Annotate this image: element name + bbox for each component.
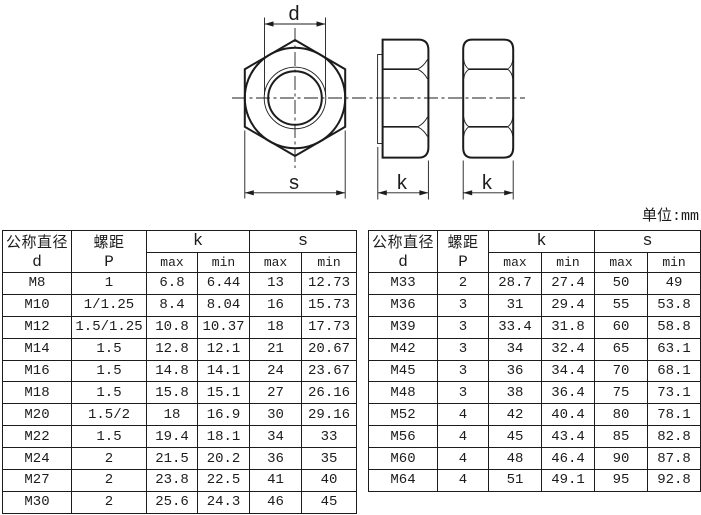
unit-note: 单位:mm [368,209,699,225]
table-cell: 15.8 [147,382,198,404]
table-row: M33228.727.45049 [369,273,701,295]
table-cell: M45 [369,360,438,382]
header-k-max: max [147,252,198,273]
table-cell: 68.1 [648,360,701,382]
table-cell: 32.4 [542,338,595,360]
table-row: M30225.624.34645 [3,491,357,513]
table-cell: 10.8 [147,316,198,338]
table-cell: 34 [489,338,542,360]
table-cell: M36 [369,294,438,316]
table-cell: M39 [369,316,438,338]
table-cell: 21 [250,338,302,360]
side-view-washer-faced [378,40,429,158]
table-row: M4233432.46563.1 [369,338,701,360]
dimension-k-right: k [463,161,513,200]
table-cell: 45 [489,426,542,448]
table-cell: 65 [595,338,648,360]
table-cell: 18.1 [198,426,250,448]
k-left-arrow-b [419,190,428,195]
side-body-outline [383,40,429,158]
pitch-label: 螺距 [72,231,146,252]
table-row: M5644543.48582.8 [369,426,701,448]
table-cell: 63.1 [648,338,701,360]
table-cell: 49 [648,273,701,295]
table-cell: 45 [302,491,357,513]
table-cell: 82.8 [648,426,701,448]
table-cell: 36.4 [542,382,595,404]
table-cell: 20.2 [198,448,250,470]
table-row: M221.519.418.13433 [3,426,357,448]
table-cell: 36 [250,448,302,470]
table-row: M201.5/21816.93029.16 [3,404,357,426]
table-cell: 30 [250,404,302,426]
table-cell: 12.73 [302,273,357,295]
table-cell: M64 [369,470,438,492]
table-cell: M10 [3,294,72,316]
table-cell: 6.44 [198,273,250,295]
dim-label-s: s [288,173,300,196]
table-row: M816.86.441312.73 [3,273,357,295]
table-cell: 60 [595,316,648,338]
table-cell: 14.8 [147,360,198,382]
table-cell: 8.4 [147,294,198,316]
table-cell: 1.5 [72,338,147,360]
table-cell: 10.37 [198,316,250,338]
chamfer-arcs-lower [418,117,428,136]
table-cell: 73.1 [648,382,701,404]
table-cell: 36 [489,360,542,382]
table-cell: M56 [369,426,438,448]
header-s-min: min [648,252,701,273]
page: d s [0,0,701,515]
table-cell: 1.5 [72,426,147,448]
table-cell: 40.4 [542,404,595,426]
table-cell: 42 [489,404,542,426]
table-cell: 1 [72,273,147,295]
table-cell: 25.6 [147,491,198,513]
header-pitch: 螺距 P [72,231,147,273]
table-cell: 34 [250,426,302,448]
table-cell: M48 [369,382,438,404]
table-cell: 29.16 [302,404,357,426]
table-cell: 15.1 [198,382,250,404]
header-s-max: max [250,252,302,273]
table-cell: 34.4 [542,360,595,382]
table-row: M6445149.19592.8 [369,470,701,492]
header-k-min: min [542,252,595,273]
table-cell: 18 [250,316,302,338]
s-arrow-left [245,190,254,195]
table-cell: M14 [3,338,72,360]
table-cell: 87.8 [648,448,701,470]
table-cell: 24.3 [198,491,250,513]
table-cell: 28.7 [489,273,542,295]
table-row: M141.512.812.12120.67 [3,338,357,360]
nut-technical-drawing: d s [0,0,701,228]
table-cell: 33.4 [489,316,542,338]
table-cell: 2 [438,273,489,295]
table-cell: 4 [438,426,489,448]
header-s: s [595,231,701,253]
header-nominal-diameter: 公称直径 d [3,231,72,273]
table-row: M4533634.47068.1 [369,360,701,382]
table-cell: 85 [595,426,648,448]
dimension-k-left: k [378,147,429,200]
table-cell: M12 [3,316,72,338]
header-k-max: max [489,252,542,273]
table-cell: 80 [595,404,648,426]
table-row: M101/1.258.48.041615.73 [3,294,357,316]
side-body-outline-2 [463,40,513,158]
nominal-diameter-label: 公称直径 [369,231,437,252]
table-cell: 2 [72,448,147,470]
table-cell: 19.4 [147,426,198,448]
table-cell: 4 [438,448,489,470]
pitch-symbol: P [72,252,146,272]
table-cell: 1.5/2 [72,404,147,426]
table-cell: 16.9 [198,404,250,426]
table-cell: M16 [3,360,72,382]
table-cell: 17.73 [302,316,357,338]
dim-label-d: d [288,4,300,27]
table-row: M24221.520.23635 [3,448,357,470]
table-cell: 4 [438,470,489,492]
table-cell: 3 [438,360,489,382]
table-cell: 1.5/1.25 [72,316,147,338]
table-cell: 16 [250,294,302,316]
table-cell: 31.8 [542,316,595,338]
header-k-min: min [198,252,250,273]
table-cell: 1/1.25 [72,294,147,316]
table-cell: 58.8 [648,316,701,338]
table-cell: 21.5 [147,448,198,470]
table-cell: M42 [369,338,438,360]
dimension-s: s [245,131,345,199]
table-cell: 22.5 [198,470,250,492]
table-cell: 2 [72,470,147,492]
table-cell: 53.8 [648,294,701,316]
table-cell: M24 [3,448,72,470]
table-cell: 51 [489,470,542,492]
table-cell: M30 [3,491,72,513]
header-nominal-diameter: 公称直径 d [369,231,438,273]
table-row: M39333.431.86058.8 [369,316,701,338]
table-cell: M8 [3,273,72,295]
table-cell: 23.67 [302,360,357,382]
header-s: s [250,231,357,253]
table-cell: 33 [302,426,357,448]
s-arrow-right [336,190,345,195]
table-cell: 95 [595,470,648,492]
table-cell: 43.4 [542,426,595,448]
header-k: k [147,231,250,253]
table-cell: 1.5 [72,382,147,404]
table-row: M121.5/1.2510.810.371817.73 [3,316,357,338]
table-cell: 90 [595,448,648,470]
table-cell: 14.1 [198,360,250,382]
table-cell: 20.67 [302,338,357,360]
table-cell: 48 [489,448,542,470]
table-cell: M60 [369,448,438,470]
table-cell: M52 [369,404,438,426]
pitch-symbol: P [438,252,488,272]
table-cell: M22 [3,426,72,448]
table-cell: M33 [369,273,438,295]
table-cell: 50 [595,273,648,295]
dim-label-k-right: k [481,173,493,196]
table-cell: 3 [438,382,489,404]
table-cell: 3 [438,294,489,316]
d-arrow-left [265,21,274,26]
table-row: M4833836.47573.1 [369,382,701,404]
table-cell: 38 [489,382,542,404]
table-cell: M20 [3,404,72,426]
dim-label-k-left: k [396,173,408,196]
nominal-diameter-symbol: d [369,252,437,272]
table-cell: 27 [250,382,302,404]
table-cell: 78.1 [648,404,701,426]
nominal-diameter-symbol: d [3,252,71,272]
k-left-arrow-a [378,190,387,195]
header-pitch: 螺距 P [438,231,489,273]
table-cell: 15.73 [302,294,357,316]
k-right-arrow-a [463,190,472,195]
side-view-double-chamfered [463,40,513,158]
table-cell: 18 [147,404,198,426]
table-cell: 8.04 [198,294,250,316]
table-cell: 35 [302,448,357,470]
table-cell: 31 [489,294,542,316]
table-row: M3633129.45553.8 [369,294,701,316]
table-row: M5244240.48078.1 [369,404,701,426]
nut-dimensions-table-left: 公称直径 d 螺距 P k s max min max min M816.86.… [2,230,357,514]
table-cell: 49.1 [542,470,595,492]
table-cell: 2 [72,491,147,513]
table-cell: 13 [250,273,302,295]
table-cell: 92.8 [648,470,701,492]
table-cell: 46.4 [542,448,595,470]
header-k: k [489,231,595,253]
nut-dimensions-table-right: 公称直径 d 螺距 P k s max min max min M33228.7… [368,230,701,492]
table-cell: 27.4 [542,273,595,295]
table-row: M27223.822.54140 [3,470,357,492]
table-cell: 12.1 [198,338,250,360]
table-row: M181.515.815.12726.16 [3,382,357,404]
table-cell: 4 [438,404,489,426]
table-cell: 70 [595,360,648,382]
table-cell: 6.8 [147,273,198,295]
table-cell: 24 [250,360,302,382]
table-cell: 1.5 [72,360,147,382]
table-row: M161.514.814.12423.67 [3,360,357,382]
table-cell: 41 [250,470,302,492]
table-row: M6044846.49087.8 [369,448,701,470]
k-right-arrow-b [504,190,513,195]
header-s-min: min [302,252,357,273]
table-cell: 3 [438,316,489,338]
table-cell: M27 [3,470,72,492]
table-cell: 46 [250,491,302,513]
table-cell: 3 [438,338,489,360]
header-s-max: max [595,252,648,273]
table-cell: 55 [595,294,648,316]
pitch-label: 螺距 [438,231,488,252]
d-arrow-right [317,21,326,26]
table-cell: 26.16 [302,382,357,404]
table-cell: 12.8 [147,338,198,360]
table-cell: 40 [302,470,357,492]
table-cell: 75 [595,382,648,404]
chamfer-arcs-upper [418,60,428,79]
table-cell: M18 [3,382,72,404]
table-cell: 23.8 [147,470,198,492]
table-cell: 29.4 [542,294,595,316]
nominal-diameter-label: 公称直径 [3,231,71,252]
